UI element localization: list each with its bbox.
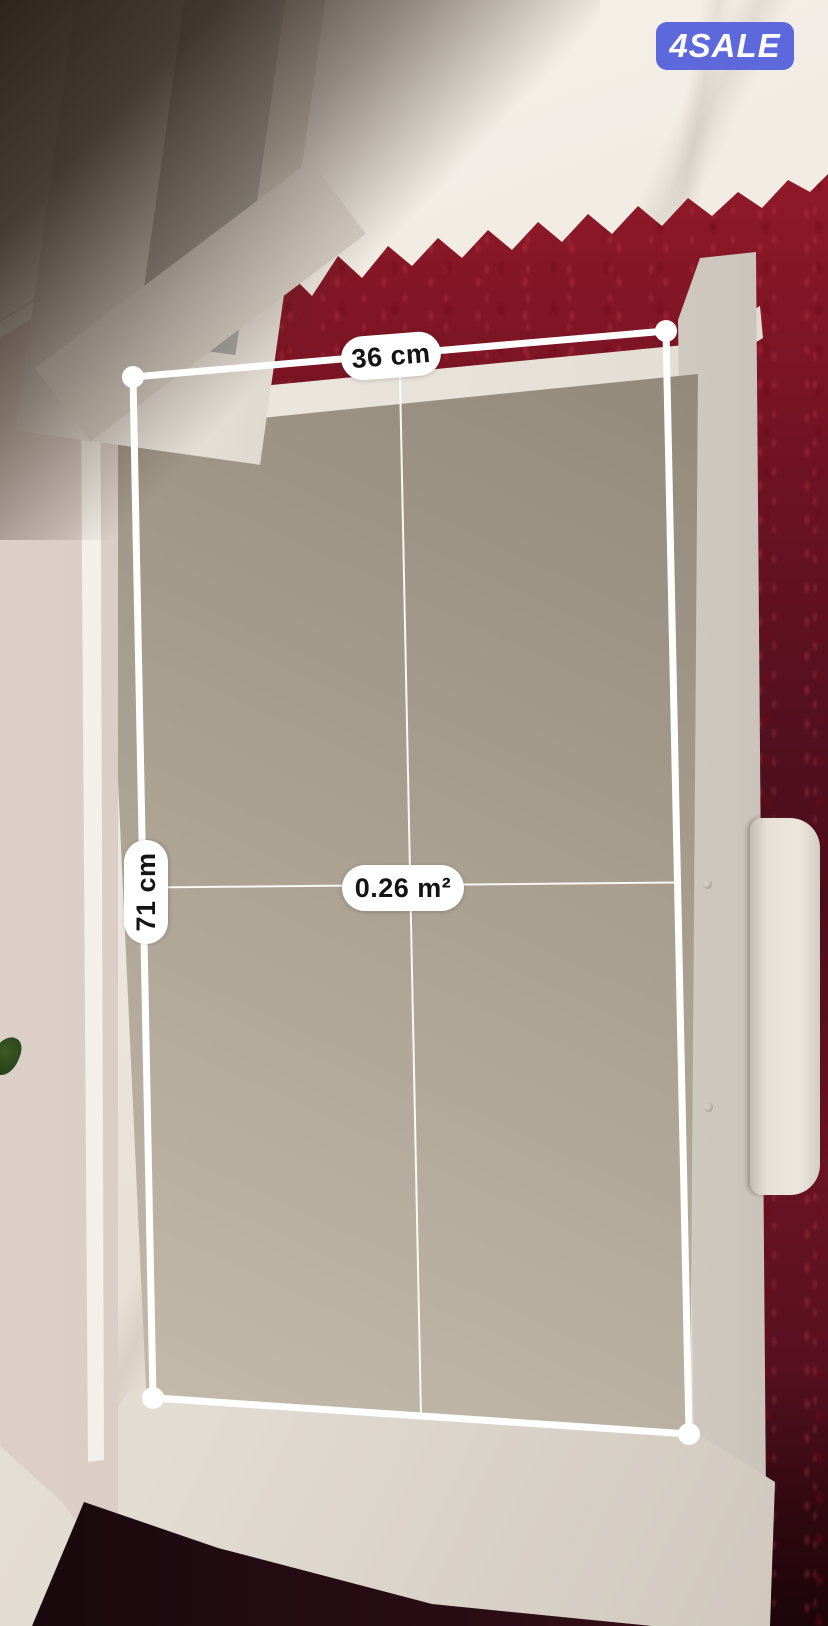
measurement-endpoint-dot — [142, 1387, 164, 1409]
ar-measure-photo: 36 cm 71 cm 0.26 m² 4SALE — [0, 0, 828, 1626]
area-measurement-label: 0.26 m² — [342, 865, 464, 911]
measurement-endpoint-dot — [655, 320, 677, 342]
measurement-endpoint-dot — [122, 366, 144, 388]
width-measurement-label: 36 cm — [339, 330, 442, 382]
4sale-watermark-badge: 4SALE — [656, 22, 794, 70]
measurement-endpoint-dot — [678, 1423, 700, 1445]
height-measurement-label: 71 cm — [124, 840, 168, 944]
measurement-overlay — [0, 0, 828, 1626]
